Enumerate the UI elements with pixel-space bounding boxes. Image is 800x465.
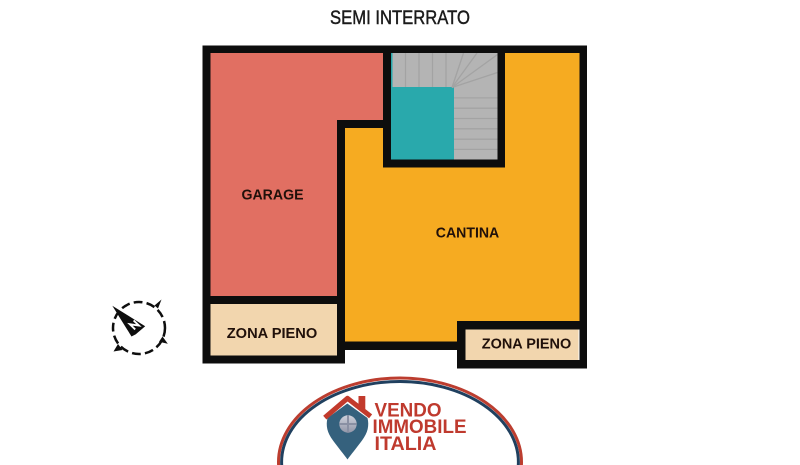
svg-text:GARAGE: GARAGE: [242, 188, 304, 204]
svg-text:CANTINA: CANTINA: [436, 226, 500, 242]
svg-text:SEMI INTERRATO: SEMI INTERRATO: [330, 7, 470, 29]
svg-text:ZONA PIENO: ZONA PIENO: [482, 335, 572, 352]
svg-text:ZONA PIENO: ZONA PIENO: [227, 325, 318, 342]
svg-text:ITALIA: ITALIA: [375, 433, 437, 455]
